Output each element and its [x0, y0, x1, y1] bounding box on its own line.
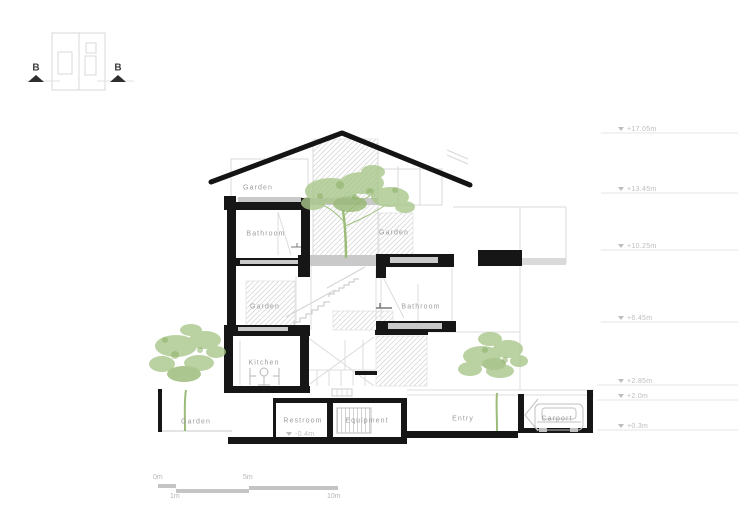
sub-level-label: -0.4m [295, 431, 314, 438]
room-label-l3-bathroom: Bathroom [246, 231, 285, 238]
level-marker: +17.05m [618, 125, 657, 133]
room-label-l3-garden: Garden [379, 230, 409, 237]
level-marker: +13.45m [618, 185, 657, 193]
scale-label-0m: 0m [153, 474, 163, 481]
level-marker: +6.45m [618, 314, 652, 322]
level-triangle-icon [618, 379, 624, 383]
room-label-l2-bathroom: Bathroom [401, 304, 440, 311]
level-triangle-icon [618, 244, 624, 248]
level-label: +13.45m [627, 186, 657, 193]
level-label: +10.25m [627, 243, 657, 250]
room-label-kitchen: Kitchen [248, 360, 279, 367]
level-triangle-icon [618, 394, 624, 398]
level-triangle-icon [618, 127, 624, 131]
room-label-equipment: Equipment [345, 418, 388, 425]
sub-level-marker: -0.4m [286, 430, 314, 438]
elevation-lines [597, 133, 738, 430]
section-drawing-canvas [0, 0, 750, 530]
room-label-entry: Entry [452, 416, 474, 423]
scale-label-10m: 10m [327, 493, 341, 500]
scale-label-5m: 5m [243, 474, 253, 481]
room-label-ground-garden: Garden [181, 419, 211, 426]
architectural-section-sheet: B B Garden Bathroom Garden Garden Bathro… [0, 0, 750, 530]
level-triangle-icon [618, 187, 624, 191]
level-triangle-icon [618, 424, 624, 428]
room-label-roof-garden: Garden [243, 185, 273, 192]
level-marker: +2.85m [618, 377, 652, 385]
kitchen-table-icon [250, 368, 279, 385]
carport-door-icon [525, 399, 538, 431]
room-label-restroom: Restroom [283, 418, 322, 425]
level-label: +6.45m [627, 315, 652, 322]
level-label: +0.3m [627, 423, 648, 430]
section-marker-b-right: B [114, 63, 121, 74]
level-marker: +2.0m [618, 392, 648, 400]
scale-bar [158, 484, 338, 493]
level-label: +2.85m [627, 378, 652, 385]
level-triangle-icon [618, 316, 624, 320]
room-label-carport: Carport [541, 416, 572, 423]
level-marker: +10.25m [618, 242, 657, 250]
level-marker: +0.3m [618, 422, 648, 430]
level-label: +2.0m [627, 393, 648, 400]
room-label-l2-garden: Garden [250, 304, 280, 311]
section-marker-b-left: B [32, 63, 39, 74]
scale-label-1m: 1m [170, 493, 180, 500]
level-triangle-icon [286, 432, 292, 436]
section-cut-arrow-icons [28, 75, 126, 82]
level-label: +17.05m [627, 126, 657, 133]
